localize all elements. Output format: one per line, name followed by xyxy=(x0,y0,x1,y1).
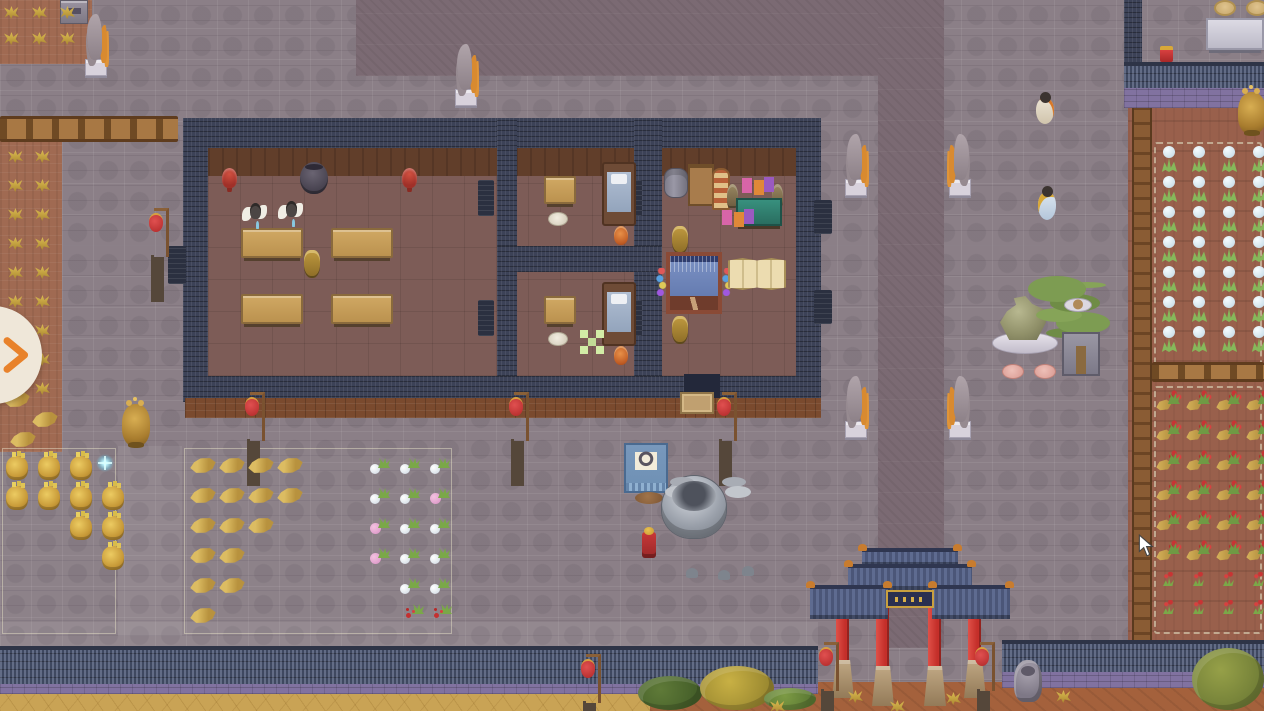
cut-white-flower[interactable] xyxy=(370,458,390,474)
millet-crop[interactable] xyxy=(8,266,23,279)
cut-red-flower[interactable] xyxy=(404,604,424,620)
red-flower-seedling[interactable] xyxy=(1222,600,1236,614)
millet-crop[interactable] xyxy=(8,179,23,192)
cut-white-flower[interactable] xyxy=(400,578,420,594)
bedroom1-table[interactable] xyxy=(544,176,576,204)
white-flower-crop[interactable] xyxy=(1220,176,1238,202)
white-flower-crop[interactable] xyxy=(1250,236,1264,262)
red-flower-crop[interactable] xyxy=(1246,420,1264,440)
grass-tuft[interactable] xyxy=(1056,690,1071,703)
thread-spools-left[interactable] xyxy=(656,268,667,296)
bedroom2-cushion[interactable] xyxy=(548,332,568,346)
hall-incense-burner[interactable] xyxy=(304,250,320,276)
red-lantern-porch-right[interactable] xyxy=(716,390,740,448)
bedroom2-table[interactable] xyxy=(544,296,576,324)
millet-crop[interactable] xyxy=(8,237,23,250)
crane-statue-path-upper-right[interactable] xyxy=(948,134,974,196)
red-flower-crop[interactable] xyxy=(1186,450,1212,470)
red-flower-crop[interactable] xyxy=(1246,480,1264,500)
white-flower-crop[interactable] xyxy=(1160,326,1178,352)
white-flower-crop[interactable] xyxy=(1190,146,1208,172)
placement-marker xyxy=(580,330,588,338)
disciple-2[interactable] xyxy=(278,200,304,226)
millet-crop[interactable] xyxy=(4,6,19,19)
white-flower-crop[interactable] xyxy=(1190,326,1208,352)
harvest-sheaf[interactable] xyxy=(189,576,217,594)
millet-crop[interactable] xyxy=(8,208,23,221)
cut-white-flower[interactable] xyxy=(430,578,450,594)
grain-sack[interactable] xyxy=(102,516,124,540)
pine-canopy[interactable] xyxy=(638,676,702,710)
harvest-sheaf[interactable] xyxy=(218,516,246,534)
cut-pink-flower[interactable] xyxy=(370,548,390,564)
red-flower-crop[interactable] xyxy=(1216,450,1242,470)
millet-crop[interactable] xyxy=(4,32,19,45)
white-flower-crop[interactable] xyxy=(1220,266,1238,292)
round-cushion-right[interactable] xyxy=(1246,0,1264,16)
red-flower-crop[interactable] xyxy=(1216,420,1242,440)
bedroom1-bed[interactable] xyxy=(602,162,636,226)
red-flower-crop[interactable] xyxy=(1156,390,1182,410)
red-lantern-west[interactable] xyxy=(148,206,172,264)
cut-white-flower[interactable] xyxy=(370,488,390,504)
stone-lion-statue[interactable] xyxy=(1014,660,1042,702)
red-flower-crop[interactable] xyxy=(1246,510,1264,530)
white-flower-crop[interactable] xyxy=(1160,296,1178,322)
crane-statue-path-lower-right[interactable] xyxy=(948,376,974,438)
olive-tree-canopy[interactable] xyxy=(1192,648,1264,710)
folding-screen[interactable] xyxy=(728,258,786,290)
bedroom2-vase[interactable] xyxy=(614,346,628,365)
round-cushion-left[interactable] xyxy=(1214,0,1236,16)
red-altar-stool-right[interactable] xyxy=(402,168,417,188)
red-lantern-porch-middle[interactable] xyxy=(508,390,532,448)
villager-east[interactable] xyxy=(1034,186,1060,224)
red-flower-crop[interactable] xyxy=(1156,450,1182,470)
storage-shelf[interactable] xyxy=(688,164,714,206)
white-flower-crop[interactable] xyxy=(1190,176,1208,202)
red-flower-seedling[interactable] xyxy=(1192,600,1206,614)
chevron-right-icon xyxy=(0,332,34,378)
cut-pink-flower[interactable] xyxy=(370,518,390,534)
white-flower-crop[interactable] xyxy=(1160,146,1178,172)
millet-crop[interactable] xyxy=(35,266,50,279)
grass-tuft[interactable] xyxy=(848,690,863,703)
grain-sack[interactable] xyxy=(38,486,60,510)
sparkle-effect xyxy=(96,454,114,472)
white-flower-crop[interactable] xyxy=(1250,326,1264,352)
white-flower-crop[interactable] xyxy=(1190,236,1208,262)
red-flower-crop[interactable] xyxy=(1156,420,1182,440)
game-viewport xyxy=(0,0,1264,711)
harvest-sheaf[interactable] xyxy=(218,456,246,474)
loom-incense-upper[interactable] xyxy=(672,226,688,252)
pink-cushion-left[interactable] xyxy=(1002,364,1024,379)
golden-incense-burner-northeast[interactable] xyxy=(1238,92,1264,134)
cut-white-flower[interactable] xyxy=(400,518,420,534)
red-flower-crop[interactable] xyxy=(1156,510,1182,530)
millet-crop[interactable] xyxy=(8,150,23,163)
red-flower-seedling[interactable] xyxy=(1192,572,1206,586)
white-flower-crop[interactable] xyxy=(1190,266,1208,292)
cut-red-flower[interactable] xyxy=(432,604,452,620)
harvest-sheaf[interactable] xyxy=(189,606,217,624)
grain-sack[interactable] xyxy=(70,486,92,510)
cut-white-flower[interactable] xyxy=(400,458,420,474)
grass-tuft[interactable] xyxy=(946,692,961,705)
crane-statue-path-lower-left[interactable] xyxy=(842,376,868,438)
stacked-goods-lower[interactable] xyxy=(722,210,756,228)
harvest-sheaf[interactable] xyxy=(247,486,275,504)
harvest-sheaf[interactable] xyxy=(218,546,246,564)
red-flower-crop[interactable] xyxy=(1186,390,1212,410)
grain-sack[interactable] xyxy=(70,516,92,540)
dry-leaf-pile[interactable] xyxy=(9,430,37,448)
harvest-sheaf[interactable] xyxy=(189,546,217,564)
red-flower-crop[interactable] xyxy=(1216,510,1242,530)
red-flower-crop[interactable] xyxy=(1246,540,1264,560)
white-flower-crop[interactable] xyxy=(1220,206,1238,232)
crane-statue-courtyard-top[interactable] xyxy=(452,44,478,106)
red-flower-crop[interactable] xyxy=(1186,540,1212,560)
white-flower-crop[interactable] xyxy=(1250,266,1264,292)
red-flower-crop[interactable] xyxy=(1246,390,1264,410)
millet-crop[interactable] xyxy=(60,32,75,45)
millet-crop[interactable] xyxy=(8,295,23,308)
millet-crop[interactable] xyxy=(35,208,50,221)
stone-table-northeast[interactable] xyxy=(1206,18,1264,50)
golden-tree-canopy[interactable] xyxy=(700,666,774,710)
red-lantern-south-wall[interactable] xyxy=(580,652,604,710)
red-altar-stool-left[interactable] xyxy=(222,168,237,188)
harvest-sheaf[interactable] xyxy=(247,516,275,534)
red-lantern-gate-right[interactable] xyxy=(974,640,998,698)
cut-white-flower[interactable] xyxy=(430,548,450,564)
red-incense-stand[interactable] xyxy=(642,532,656,558)
white-flower-crop[interactable] xyxy=(1220,296,1238,322)
white-flower-crop[interactable] xyxy=(1250,296,1264,322)
red-flower-crop[interactable] xyxy=(1216,540,1242,560)
loom-incense-lower[interactable] xyxy=(672,316,688,342)
red-flower-seedling[interactable] xyxy=(1162,600,1176,614)
white-flower-crop[interactable] xyxy=(1160,176,1178,202)
entrance-doormat[interactable] xyxy=(680,392,714,414)
disciple-1[interactable] xyxy=(242,202,268,228)
shrub-canopy[interactable] xyxy=(764,688,816,710)
large-dark-urn[interactable] xyxy=(300,162,328,194)
grain-sack[interactable] xyxy=(6,486,28,510)
harvest-sheaf[interactable] xyxy=(247,456,275,474)
harvest-sheaf[interactable] xyxy=(218,486,246,504)
crane-statue-path-upper-left[interactable] xyxy=(842,134,868,196)
red-flower-crop[interactable] xyxy=(1156,480,1182,500)
cut-white-flower[interactable] xyxy=(430,518,450,534)
millet-crop[interactable] xyxy=(32,32,47,45)
dining-table-4[interactable] xyxy=(331,294,393,324)
millet-crop[interactable] xyxy=(35,179,50,192)
white-flower-crop[interactable] xyxy=(1250,176,1264,202)
red-flower-crop[interactable] xyxy=(1246,450,1264,470)
white-flower-crop[interactable] xyxy=(1220,146,1238,172)
red-flower-crop[interactable] xyxy=(1216,480,1242,500)
grain-sack[interactable] xyxy=(102,546,124,570)
white-flower-crop[interactable] xyxy=(1160,236,1178,262)
white-flower-crop[interactable] xyxy=(1250,206,1264,232)
millet-crop[interactable] xyxy=(35,150,50,163)
white-flower-crop[interactable] xyxy=(1190,206,1208,232)
golden-incense-burner-west[interactable] xyxy=(122,404,150,446)
red-flower-seedling[interactable] xyxy=(1252,600,1264,614)
harvest-sheaf[interactable] xyxy=(276,456,304,474)
red-flower-seedling[interactable] xyxy=(1252,572,1264,586)
cut-white-flower[interactable] xyxy=(400,488,420,504)
great-bronze-cauldron[interactable] xyxy=(658,466,730,552)
white-flower-crop[interactable] xyxy=(1160,206,1178,232)
red-flower-crop[interactable] xyxy=(1216,390,1242,410)
storage-barrel[interactable] xyxy=(664,168,688,198)
villager-north[interactable] xyxy=(1032,92,1058,130)
white-flower-crop[interactable] xyxy=(1250,146,1264,172)
harvest-sheaf[interactable] xyxy=(189,456,217,474)
cut-white-flower[interactable] xyxy=(430,458,450,474)
red-flower-crop[interactable] xyxy=(1186,510,1212,530)
stacked-goods-upper[interactable] xyxy=(742,178,776,196)
red-flower-crop[interactable] xyxy=(1156,540,1182,560)
weaving-loom[interactable] xyxy=(666,252,722,314)
dining-table-1[interactable] xyxy=(241,228,303,258)
dry-leaf-pile[interactable] xyxy=(31,410,59,428)
grain-sack[interactable] xyxy=(6,456,28,480)
white-flower-crop[interactable] xyxy=(1160,266,1178,292)
entity-layer xyxy=(0,0,1264,711)
bedroom1-cushion[interactable] xyxy=(548,212,568,226)
bedroom1-vase[interactable] xyxy=(614,226,628,245)
mouse-cursor-icon xyxy=(1138,534,1156,558)
cut-white-flower[interactable] xyxy=(400,548,420,564)
harvest-sheaf[interactable] xyxy=(218,576,246,594)
harvest-sheaf[interactable] xyxy=(276,486,304,504)
white-flower-crop[interactable] xyxy=(1220,326,1238,352)
red-flower-seedling[interactable] xyxy=(1222,572,1236,586)
white-flower-crop[interactable] xyxy=(1190,296,1208,322)
red-chest[interactable] xyxy=(1160,46,1173,62)
dining-table-2[interactable] xyxy=(331,228,393,258)
cut-pink-flower[interactable] xyxy=(430,488,450,504)
crane-statue-northwest[interactable] xyxy=(82,14,108,76)
white-flower-crop[interactable] xyxy=(1220,236,1238,262)
pink-cushion-right[interactable] xyxy=(1034,364,1056,379)
bedroom2-bed[interactable] xyxy=(602,282,636,346)
grass-tuft[interactable] xyxy=(890,700,905,711)
millet-crop[interactable] xyxy=(35,237,50,250)
millet-crop[interactable] xyxy=(35,295,50,308)
red-lantern-gate-left[interactable] xyxy=(818,640,842,698)
red-flower-crop[interactable] xyxy=(1186,480,1212,500)
dining-table-3[interactable] xyxy=(241,294,303,324)
grain-sack[interactable] xyxy=(70,456,92,480)
bonsai-tree[interactable] xyxy=(1028,276,1104,376)
red-lantern-porch-left[interactable] xyxy=(244,390,268,448)
harvest-sheaf[interactable] xyxy=(189,486,217,504)
grain-sack[interactable] xyxy=(102,486,124,510)
harvest-sheaf[interactable] xyxy=(189,516,217,534)
red-flower-crop[interactable] xyxy=(1186,420,1212,440)
millet-crop[interactable] xyxy=(32,6,47,19)
red-flower-seedling[interactable] xyxy=(1162,572,1176,586)
offering-plate[interactable] xyxy=(1064,298,1092,312)
grain-sack[interactable] xyxy=(38,456,60,480)
millet-crop[interactable] xyxy=(35,382,50,395)
